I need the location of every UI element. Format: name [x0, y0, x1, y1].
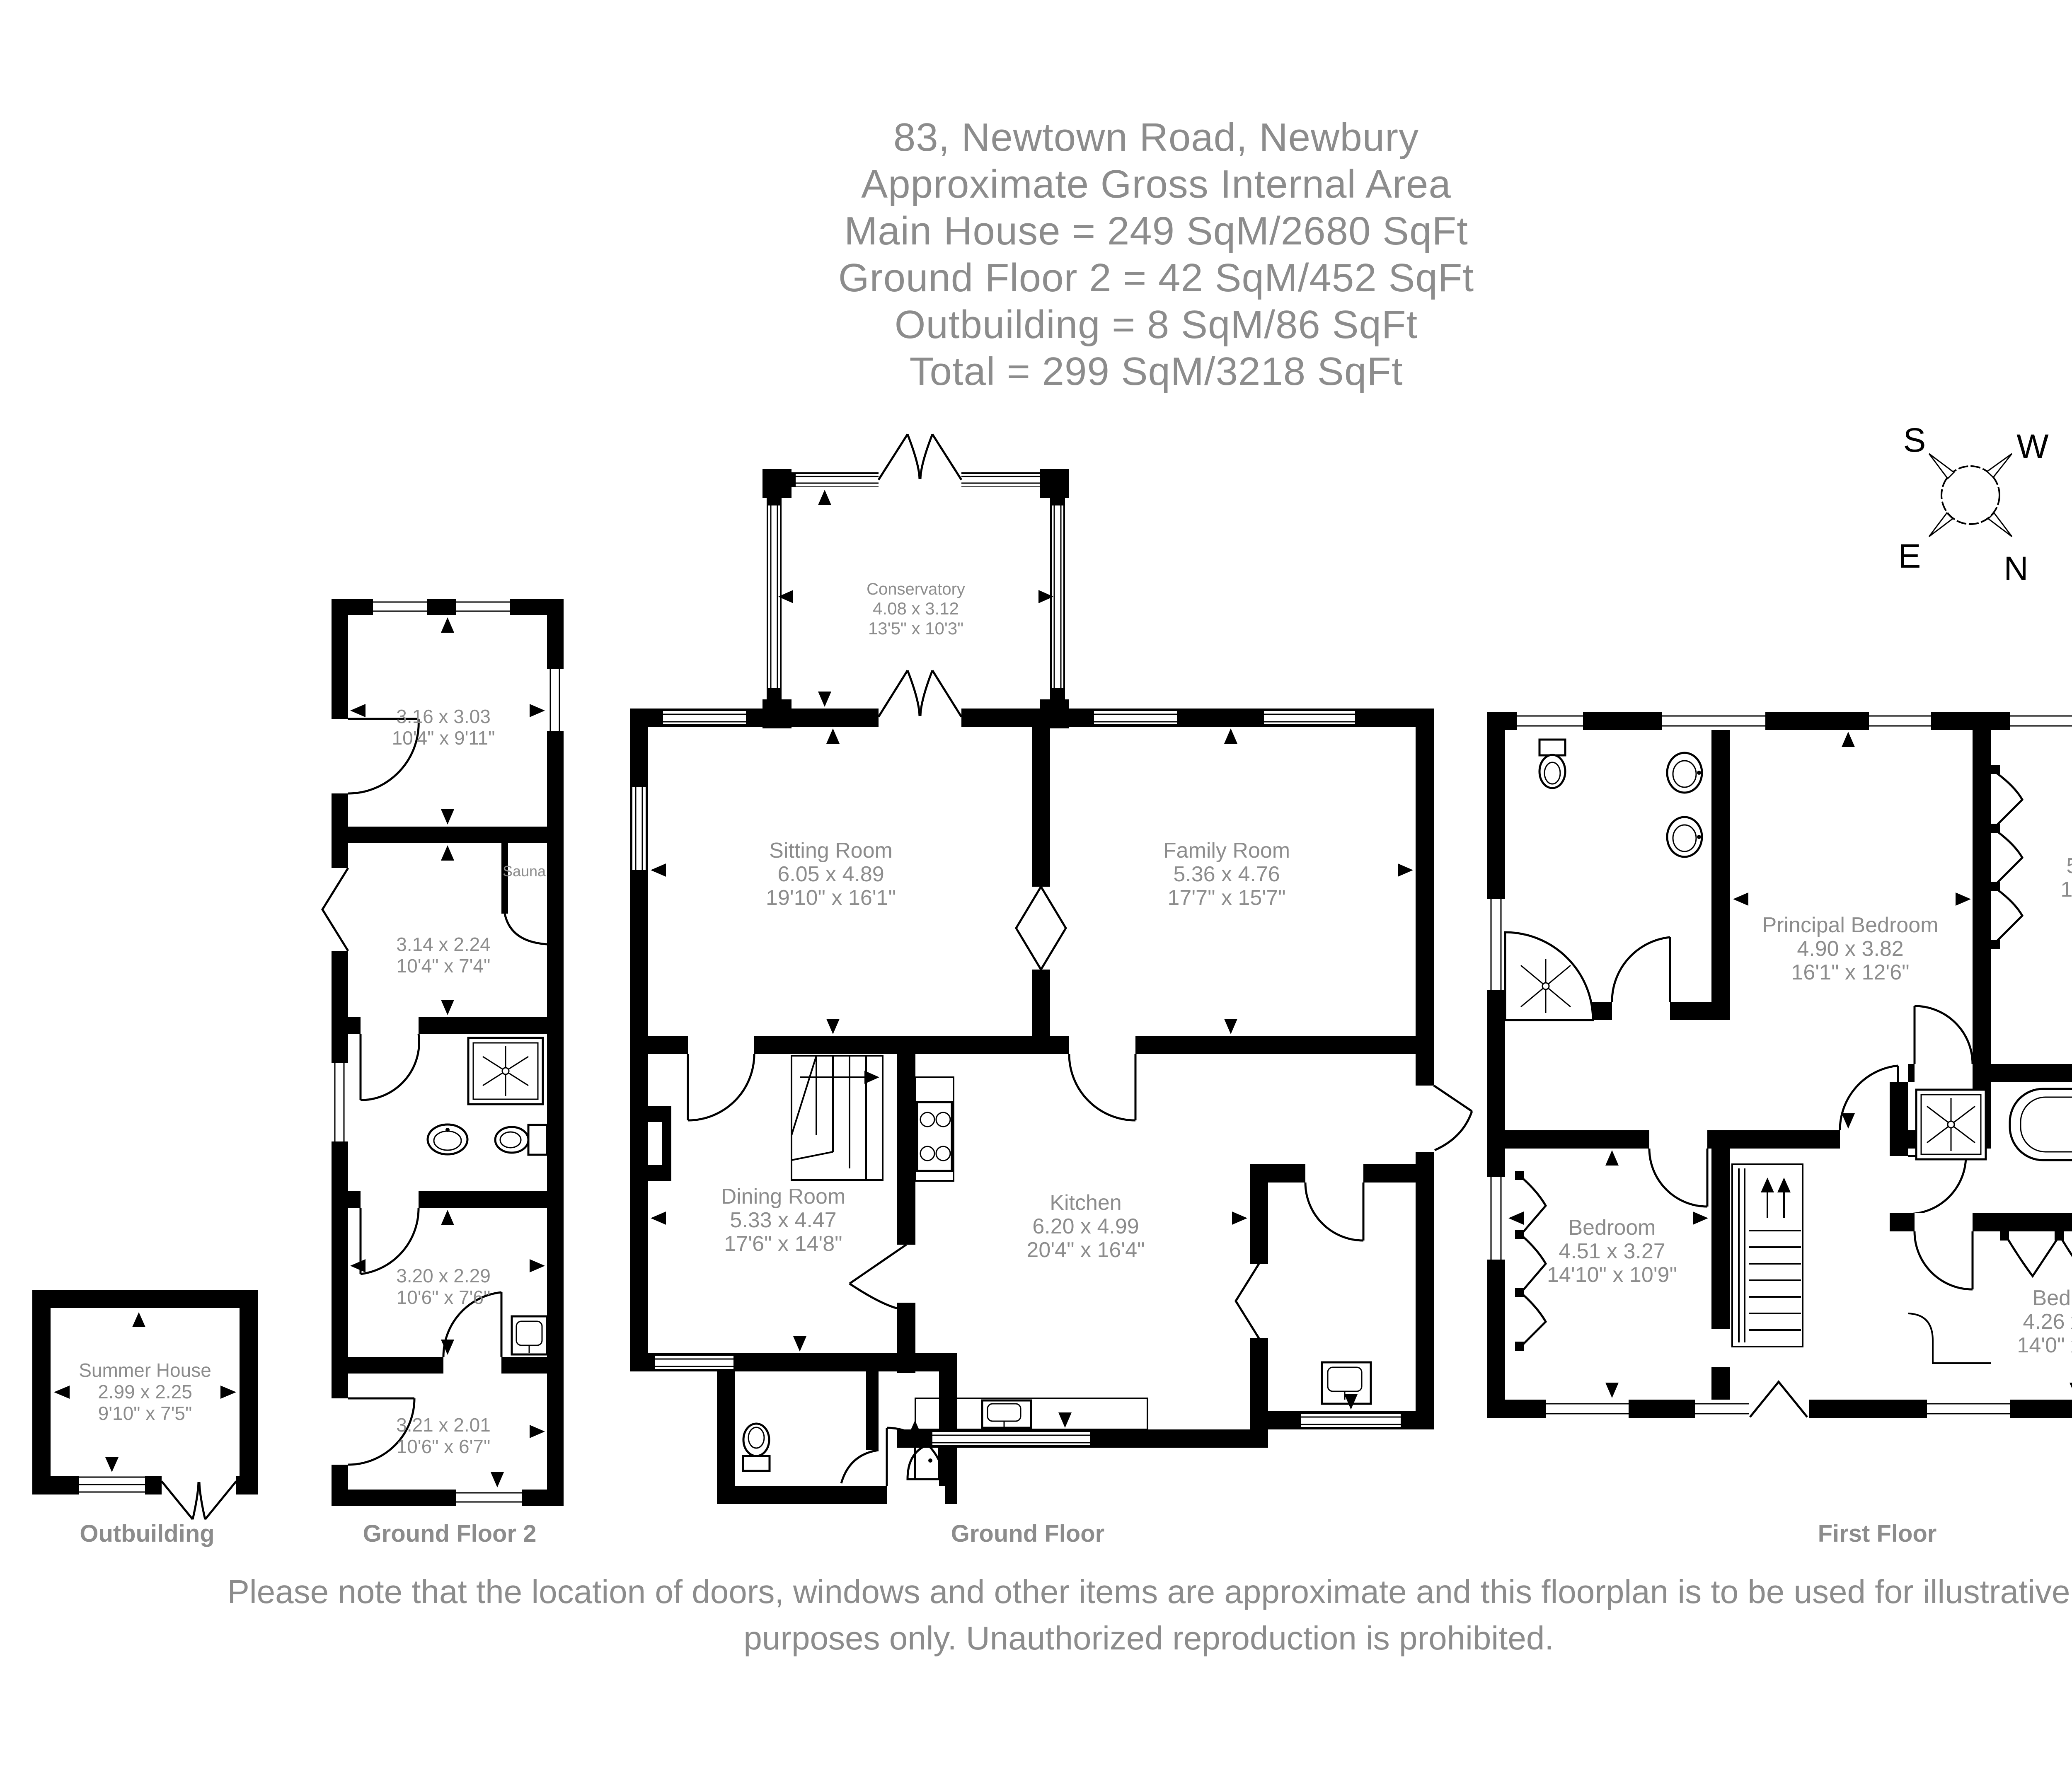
- window: [547, 669, 564, 731]
- sink-icon: [512, 1316, 547, 1354]
- disclaimer-line-1: Please note that the location of doors, …: [0, 1569, 2072, 1615]
- window: [632, 787, 646, 870]
- toilet-icon: [743, 1424, 770, 1471]
- svg-text:14'0" x 10'5": 14'0" x 10'5": [2017, 1333, 2072, 1357]
- room-label-summer-house: Summer House 2.99 x 2.25 9'10" x 7'5": [79, 1359, 211, 1424]
- plan-first-floor: Principal Bedroom 4.90 x 3.82 16'1" x 12…: [1475, 700, 2072, 1429]
- compass-spike-w: [1987, 454, 2012, 477]
- ground-floor-2-area: Ground Floor 2 = 42 SqM/452 SqFt: [609, 254, 1703, 301]
- svg-text:20'4" x 16'4": 20'4" x 16'4": [1026, 1238, 1145, 1262]
- svg-text:Dining Room: Dining Room: [721, 1185, 846, 1209]
- svg-text:Kitchen: Kitchen: [1050, 1191, 1121, 1215]
- address-line: 83, Newtown Road, Newbury: [609, 114, 1703, 161]
- compass-spike-n: [1988, 513, 2012, 537]
- svg-text:6.20 x 4.99: 6.20 x 4.99: [1032, 1214, 1139, 1238]
- svg-text:Bedroom: Bedroom: [1569, 1216, 1656, 1240]
- door: [850, 1245, 906, 1310]
- svg-text:3.20 x 2.29: 3.20 x 2.29: [396, 1265, 491, 1287]
- svg-text:19'10" x 16'1": 19'10" x 16'1": [766, 886, 896, 910]
- svg-text:10'4" x 7'4": 10'4" x 7'4": [397, 955, 491, 977]
- label-ground-floor-2: Ground Floor 2: [323, 1520, 576, 1548]
- svg-text:17'6" x 14'8": 17'6" x 14'8": [724, 1232, 842, 1256]
- compass-east: E: [1898, 537, 1921, 575]
- svg-text:4.26 x 3.18: 4.26 x 3.18: [2023, 1310, 2072, 1334]
- room-label-family-room: Family Room 5.36 x 4.76 17'7" x 15'7": [1163, 839, 1290, 910]
- svg-text:10'6" x 7'6": 10'6" x 7'6": [397, 1287, 491, 1308]
- svg-text:4.51 x 3.27: 4.51 x 3.27: [1559, 1239, 1665, 1263]
- outbuilding-area: Outbuilding = 8 SqM/86 SqFt: [609, 301, 1703, 348]
- compass-north: N: [2004, 550, 2028, 588]
- label-first-floor: First Floor: [1749, 1520, 2006, 1548]
- svg-text:3.14 x 2.24: 3.14 x 2.24: [396, 933, 491, 955]
- svg-text:5.34 x 4.73: 5.34 x 4.73: [2066, 854, 2072, 878]
- room-label-conservatory: Conservatory 4.08 x 3.12 13'5" x 10'3": [867, 580, 965, 638]
- svg-text:2.99 x 2.25: 2.99 x 2.25: [98, 1381, 192, 1403]
- svg-text:Family Room: Family Room: [1163, 839, 1290, 863]
- svg-text:Summer House: Summer House: [79, 1359, 211, 1381]
- shower-icon: [1916, 1090, 1986, 1159]
- svg-text:10'4" x 9'11": 10'4" x 9'11": [392, 727, 495, 749]
- room-label-sitting-room: Sitting Room 6.05 x 4.89 19'10" x 16'1": [766, 839, 896, 910]
- title-block: 83, Newtown Road, Newbury Approximate Gr…: [609, 114, 1703, 395]
- fireplace: [648, 1106, 671, 1181]
- svg-text:3.16 x 3.03: 3.16 x 3.03: [396, 706, 491, 727]
- window: [932, 1432, 1090, 1445]
- window: [456, 1490, 522, 1506]
- room-label-gf2-room1: 3.16 x 3.03 10'4" x 9'11": [392, 706, 495, 749]
- disclaimer-line-2: purposes only. Unauthorized reproduction…: [0, 1615, 2072, 1661]
- folding-opening: [1236, 1264, 1259, 1338]
- back-door: [1416, 1086, 1472, 1152]
- svg-text:6.05 x 4.89: 6.05 x 4.89: [777, 862, 884, 886]
- svg-text:4.08 x 3.12: 4.08 x 3.12: [873, 599, 959, 618]
- svg-text:5.33 x 4.47: 5.33 x 4.47: [730, 1208, 836, 1232]
- main-house-area: Main House = 249 SqM/2680 SqFt: [609, 208, 1703, 254]
- toilet-icon: [1539, 740, 1565, 788]
- compass-spike-e: [1929, 513, 1953, 537]
- svg-text:17'6" x 15'6": 17'6" x 15'6": [2060, 878, 2072, 902]
- svg-text:4.90 x 3.82: 4.90 x 3.82: [1797, 937, 1903, 961]
- plan-ground-floor: Conservatory 4.08 x 3.12 13'5" x 10'3" S…: [617, 431, 1479, 1516]
- window: [79, 1474, 145, 1495]
- compass-spike-s: [1929, 454, 1954, 479]
- gia-line: Approximate Gross Internal Area: [609, 161, 1703, 208]
- room-label-kitchen: Kitchen 6.20 x 4.99 20'4" x 16'4": [1026, 1191, 1145, 1262]
- toilet-icon: [495, 1125, 547, 1155]
- folding-opening: [322, 868, 348, 951]
- compass-south: S: [1903, 421, 1926, 459]
- svg-text:14'10" x 10'9": 14'10" x 10'9": [1547, 1263, 1677, 1287]
- hob-icon: [915, 1077, 954, 1181]
- window: [655, 1356, 733, 1369]
- door: [1069, 1036, 1135, 1120]
- shower-icon: [468, 1038, 543, 1104]
- folding-opening: [1016, 887, 1066, 970]
- svg-text:13'5" x 10'3": 13'5" x 10'3": [868, 619, 963, 638]
- svg-text:3.21 x 2.01: 3.21 x 2.01: [396, 1414, 491, 1436]
- floorplan-page: { "header": { "lines": [ "83, Newtown Ro…: [0, 0, 2072, 1775]
- svg-text:10'6" x 6'7": 10'6" x 6'7": [397, 1436, 491, 1457]
- basin-icon: [428, 1124, 467, 1154]
- label-outbuilding: Outbuilding: [29, 1520, 265, 1548]
- svg-text:Sitting Room: Sitting Room: [769, 839, 893, 863]
- svg-text:16'1" x 12'6": 16'1" x 12'6": [1791, 960, 1909, 984]
- utility-pod: [1268, 1164, 1434, 1429]
- svg-text:Conservatory: Conservatory: [867, 580, 965, 598]
- double-door: [162, 1474, 236, 1519]
- svg-text:Bedroom: Bedroom: [2033, 1286, 2072, 1310]
- sauna-label: Sauna: [503, 863, 546, 880]
- plan-ground-floor-2: Sauna: [319, 586, 580, 1514]
- window: [332, 1063, 348, 1141]
- room-label-gf2-room2: 3.14 x 2.24 10'4" x 7'4": [396, 933, 491, 977]
- compass-rose: S W E N: [1890, 406, 2064, 592]
- svg-text:5.36 x 4.76: 5.36 x 4.76: [1173, 862, 1280, 886]
- room-label-dining-room: Dining Room 5.33 x 4.47 17'6" x 14'8": [721, 1185, 846, 1256]
- svg-text:17'7" x 15'7": 17'7" x 15'7": [1167, 886, 1285, 910]
- total-area: Total = 299 SqM/3218 SqFt: [609, 348, 1703, 395]
- room-label-gf2-room3: 3.20 x 2.29 10'6" x 7'6": [396, 1265, 491, 1308]
- room-label-gf2-room4: 3.21 x 2.01 10'6" x 6'7": [396, 1414, 491, 1457]
- plan-outbuilding: Summer House 2.99 x 2.25 9'10" x 7'5": [29, 1287, 265, 1510]
- bath-icon: [2010, 1089, 2072, 1160]
- door: [688, 1036, 754, 1120]
- disclaimer: Please note that the location of doors, …: [0, 1569, 2072, 1661]
- compass-west: W: [2016, 428, 2049, 465]
- stairs-icon: [792, 1056, 883, 1180]
- label-ground-floor: Ground Floor: [899, 1520, 1156, 1548]
- double-door: [879, 434, 961, 489]
- svg-text:Principal Bedroom: Principal Bedroom: [1762, 913, 1939, 937]
- svg-text:9'10" x 7'5": 9'10" x 7'5": [98, 1403, 192, 1424]
